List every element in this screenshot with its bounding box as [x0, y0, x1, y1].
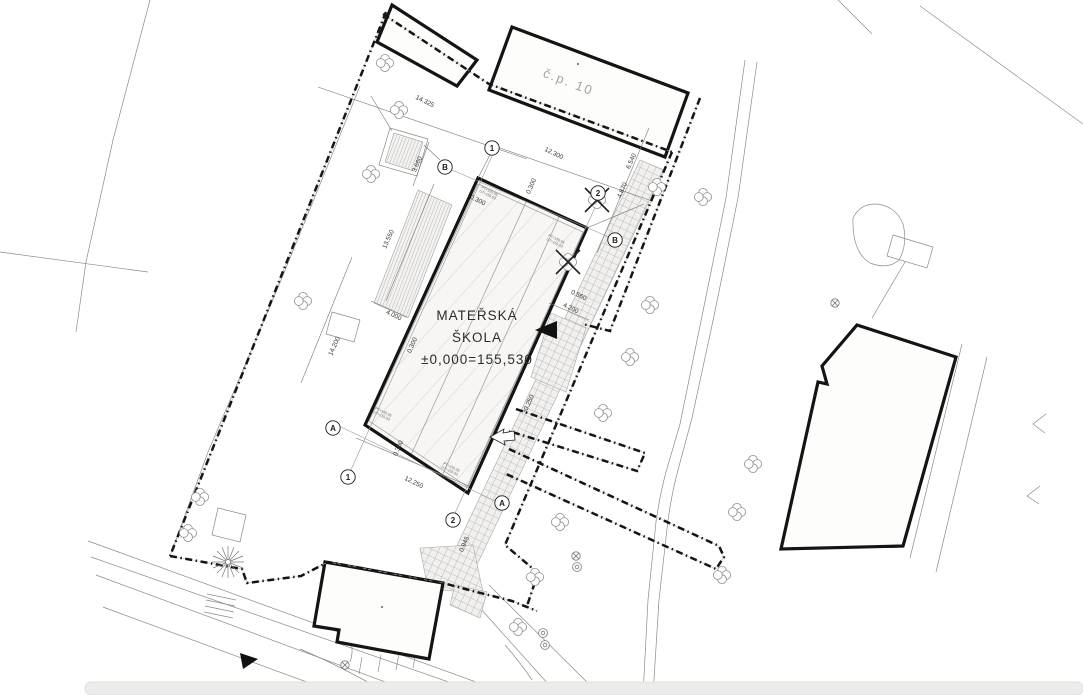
site-plan-drawing: MATEŘSKÁ ŠKOLA ±0,000=155,530 č.p. 10 14…	[0, 0, 1083, 695]
horizontal-scrollbar[interactable]	[85, 682, 1083, 695]
grid-marker-label: 2	[451, 516, 456, 525]
manhole-icon	[541, 641, 550, 650]
manhole-icon	[573, 563, 582, 572]
grid-marker-label: A	[499, 499, 505, 508]
utility-cross-icon	[572, 552, 580, 560]
utility-cross-icon	[831, 299, 839, 307]
manhole-icon	[539, 629, 548, 638]
utility-cross-icon	[341, 661, 349, 669]
building-center-dot	[381, 606, 383, 608]
grid-marker-label: A	[330, 424, 336, 433]
building-center-dot	[577, 63, 579, 65]
building-name-line2: ŠKOLA	[452, 330, 502, 345]
grid-marker-label: B	[442, 163, 448, 172]
building-name-line1: MATEŘSKÁ	[436, 308, 517, 323]
grid-marker-label: B	[612, 236, 618, 245]
building-elevation: ±0,000=155,530	[421, 352, 533, 367]
grid-marker-label: 2	[596, 189, 601, 198]
grid-marker-label: 1	[490, 144, 495, 153]
grid-marker-label: 1	[346, 473, 351, 482]
